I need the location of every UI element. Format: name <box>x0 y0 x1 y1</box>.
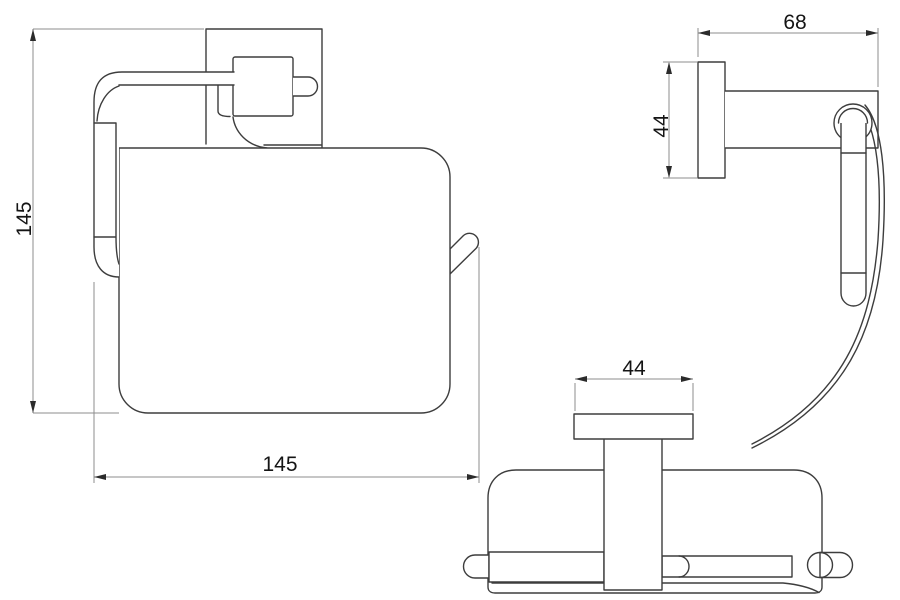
side-roller-bar <box>841 123 866 306</box>
top-plate-width-dimension: 44 <box>575 357 693 411</box>
front-roller-hidden-edge <box>218 85 230 117</box>
front-roller-fillet <box>233 117 267 148</box>
front-height-label: 145 <box>13 201 36 236</box>
arrow-left-icon <box>94 474 106 480</box>
side-depth-label: 68 <box>783 11 806 34</box>
side-plate-height-label: 44 <box>650 114 673 138</box>
side-plate-height-dimension: 44 <box>650 62 697 178</box>
arrow-left-icon <box>698 30 710 36</box>
arrow-up-icon <box>666 62 672 74</box>
side-view: 68 44 <box>650 11 884 448</box>
top-roller-knob <box>820 553 852 578</box>
arrow-down-icon <box>30 401 36 413</box>
top-roller-right-section <box>662 556 792 577</box>
top-wall-plate <box>574 414 693 439</box>
technical-drawing: 145 145 68 <box>0 0 900 600</box>
arrow-down-icon <box>666 166 672 178</box>
top-plate-width-label: 44 <box>622 357 646 380</box>
top-roller-left-cap <box>464 555 490 578</box>
front-width-label: 145 <box>262 453 297 476</box>
front-bracket-pin <box>293 77 318 96</box>
arrow-left-icon <box>575 376 587 382</box>
front-cover-outline <box>119 148 450 413</box>
front-spindle-tip <box>450 233 478 274</box>
drawing-canvas: 145 145 68 <box>0 0 900 600</box>
front-roller-bracket <box>233 57 293 116</box>
arrow-right-icon <box>866 30 878 36</box>
top-view: 44 <box>464 357 853 593</box>
arrow-right-icon <box>467 474 479 480</box>
top-roller-sleeve <box>489 552 604 582</box>
arrow-up-icon <box>30 29 36 41</box>
arrow-right-icon <box>681 376 693 382</box>
side-wall-plate <box>698 62 725 178</box>
front-view: 145 145 <box>13 29 479 483</box>
top-arm <box>604 430 662 590</box>
